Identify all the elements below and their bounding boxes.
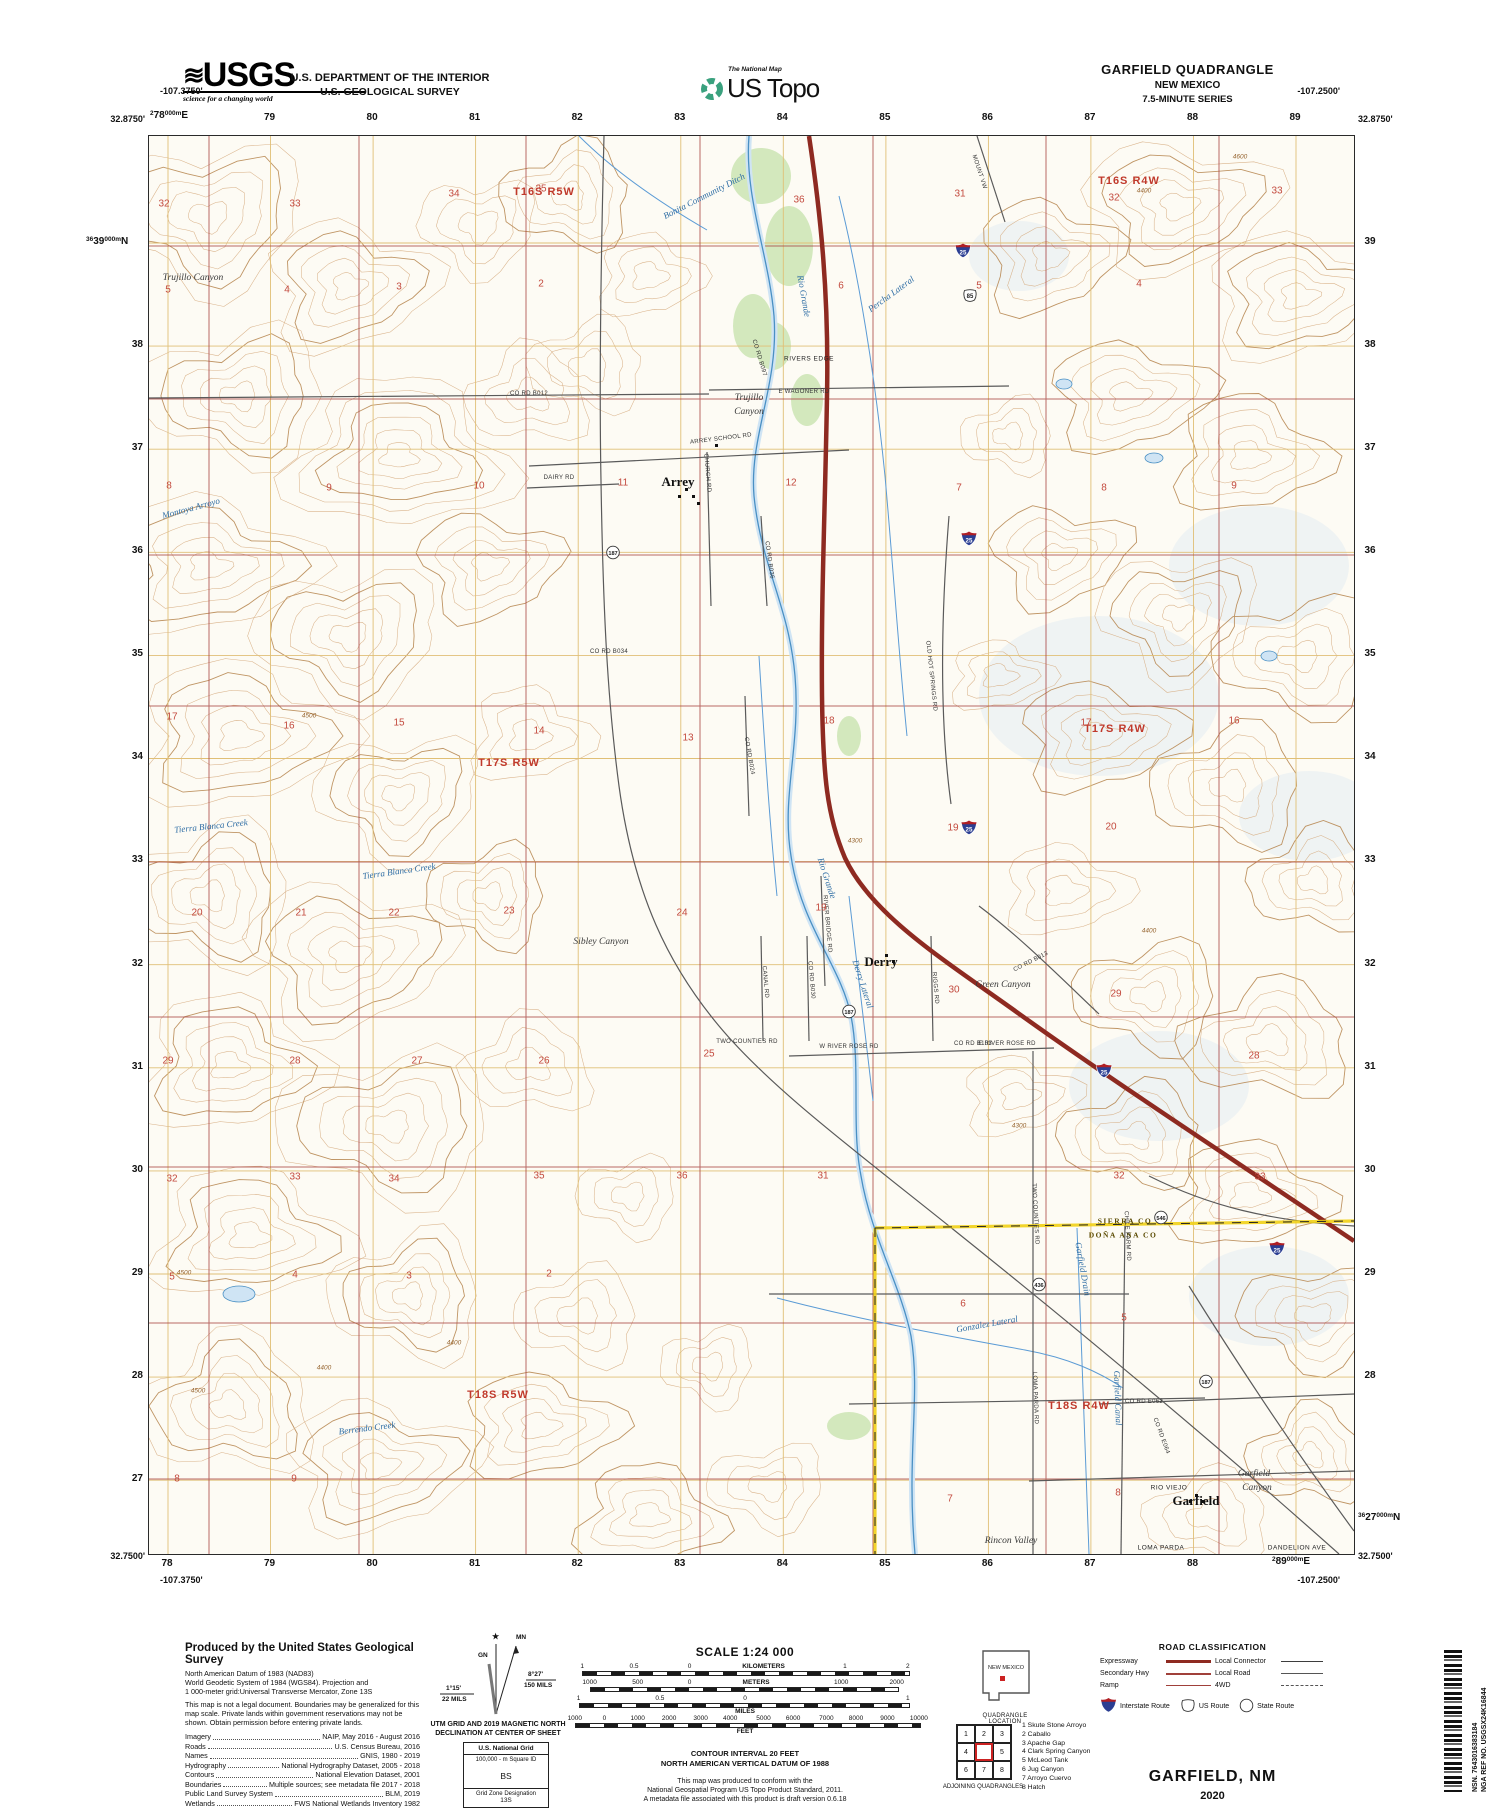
grid-tick-label: 36 bbox=[132, 545, 143, 556]
road-class-line-sample bbox=[1166, 1685, 1211, 1686]
water-label: Garfield Canal bbox=[1112, 1370, 1124, 1425]
section-number: 3 bbox=[396, 282, 402, 293]
landform-label: Canyon bbox=[1242, 1483, 1272, 1493]
ustopo-icon bbox=[700, 77, 724, 101]
quadrangle-location: NEW MEXICO QUADRANGLE LOCATION bbox=[968, 1645, 1042, 1725]
road-class-label: 4WD bbox=[1215, 1682, 1277, 1689]
ustopo-logo: The National Map US Topo bbox=[700, 66, 860, 104]
svg-text:25: 25 bbox=[966, 538, 973, 545]
usng-zone-label: Grid Zone Designation bbox=[464, 1788, 548, 1797]
usng-subtitle: 100,000 - m Square ID bbox=[464, 1755, 548, 1765]
page: ≋USGS science for a changing world U.S. … bbox=[0, 0, 1500, 1813]
road-label: ARREY SCHOOL RD bbox=[690, 432, 752, 446]
magnetic-north-label: MN bbox=[516, 1634, 526, 1641]
section-number: 2 bbox=[538, 279, 544, 290]
scale-bars: 10.50KILOMETERS1210005000METERS100020001… bbox=[560, 1663, 930, 1741]
credits-block: Produced by the United States Geological… bbox=[185, 1642, 420, 1808]
scale-bar-label: 1000 bbox=[834, 1679, 848, 1686]
adjoining-quad-name: 4 Clark Spring Canyon bbox=[1022, 1748, 1132, 1757]
svg-text:25: 25 bbox=[960, 250, 967, 257]
road-label: CO RD E062 bbox=[1125, 1399, 1163, 1405]
data-source-row: WetlandsFWS National Wetlands Inventory … bbox=[185, 1799, 420, 1809]
corner-lon-sw: -107.3750' bbox=[160, 1575, 203, 1585]
scale-bar-unit: FEET bbox=[737, 1728, 754, 1735]
grid-tick-label: 81 bbox=[469, 112, 480, 123]
grid-tick-label: 81 bbox=[469, 1558, 480, 1569]
scale-bar-label: 1000 bbox=[568, 1715, 582, 1722]
scale-bar-label: 6000 bbox=[786, 1715, 800, 1722]
adjoining-quad-name: 5 McLeod Tank bbox=[1022, 1757, 1132, 1766]
section-number: 19 bbox=[815, 903, 826, 914]
svg-text:436: 436 bbox=[1034, 1283, 1043, 1289]
road-label: CO RD B012 bbox=[510, 391, 548, 397]
section-number: 33 bbox=[1271, 186, 1282, 197]
town-label: Derry bbox=[864, 954, 897, 970]
adjoining-quad-cell: 5 bbox=[993, 1743, 1011, 1761]
road-label: CO RD B034 bbox=[590, 649, 628, 655]
town-label: Garfield bbox=[1173, 1493, 1220, 1509]
grid-tick-label: 33 bbox=[132, 854, 143, 865]
landform-label: Trujillo Canyon bbox=[163, 273, 223, 283]
county-label: DOÑA ANA CO bbox=[1089, 1231, 1158, 1240]
section-number: 4 bbox=[284, 285, 290, 296]
adjoining-quad-cell: 7 bbox=[975, 1761, 993, 1779]
sheet-year: 2020 bbox=[1100, 1790, 1325, 1802]
section-number: 15 bbox=[393, 718, 404, 729]
section-number: 5 bbox=[165, 285, 171, 296]
grid-tick-label: 34 bbox=[132, 751, 143, 762]
grid-tick-label: 31 bbox=[1364, 1061, 1375, 1072]
scale-bar-label: 1000 bbox=[582, 1679, 596, 1686]
road-class-line-sample bbox=[1166, 1673, 1211, 1675]
road-class-line-sample bbox=[1281, 1685, 1323, 1686]
corner-lon-nw: -107.3750' bbox=[160, 86, 203, 96]
usng-zone: 13S bbox=[464, 1797, 548, 1807]
state-route-key: State Route bbox=[1239, 1698, 1294, 1715]
svg-text:25: 25 bbox=[1274, 1248, 1281, 1255]
adjoining-quads-grid: 12345678 bbox=[956, 1724, 1012, 1780]
grid-tick-label: 35 bbox=[132, 648, 143, 659]
data-source-row: ContoursNational Elevation Dataset, 2001 bbox=[185, 1770, 420, 1780]
interstate-shield-icon: 25 bbox=[955, 243, 972, 264]
section-number: 7 bbox=[947, 1494, 953, 1505]
section-number: 5 bbox=[169, 1272, 175, 1283]
svg-text:187: 187 bbox=[1201, 1380, 1210, 1386]
section-number: 34 bbox=[388, 1174, 399, 1185]
us-route-shield-icon: 85 bbox=[962, 288, 978, 308]
landform-label: Trujillo bbox=[735, 393, 764, 403]
water-label: Bonita Community Ditch bbox=[662, 171, 747, 221]
road-label: W RIVER ROSE RD bbox=[819, 1044, 878, 1050]
road-label: E RIVER ROSE RD bbox=[978, 1041, 1036, 1047]
section-number: 8 bbox=[166, 481, 172, 492]
section-number: 30 bbox=[948, 985, 959, 996]
utm-northing-label: 3627000mN bbox=[1358, 1512, 1400, 1523]
grid-tick-label: 86 bbox=[982, 1558, 993, 1569]
water-label: Berrendo Creek bbox=[338, 1420, 396, 1437]
section-number: 9 bbox=[291, 1474, 297, 1485]
section-number: 10 bbox=[473, 481, 484, 492]
adjoining-quad-name: 2 Caballo bbox=[1022, 1731, 1132, 1740]
section-number: 31 bbox=[954, 189, 965, 200]
road-label: CO RD B097 bbox=[751, 339, 768, 377]
state-route-circle-icon bbox=[1239, 1698, 1254, 1715]
contour-elevation-label: 4600 bbox=[1233, 154, 1247, 161]
road-label: CO RD B030 bbox=[806, 961, 815, 999]
road-classification: ROAD CLASSIFICATION ExpresswayLocal Conn… bbox=[1100, 1642, 1325, 1715]
department-heading: U.S. DEPARTMENT OF THE INTERIOR U.S. GEO… bbox=[290, 72, 490, 98]
road-class-line-sample bbox=[1166, 1660, 1211, 1663]
corner-lon-se: -107.2500' bbox=[1297, 1575, 1340, 1585]
data-source-row: Public Land Survey SystemBLM, 2019 bbox=[185, 1789, 420, 1799]
grid-tick-label: 31 bbox=[132, 1061, 143, 1072]
scale-bar bbox=[582, 1671, 910, 1676]
adjoining-quad-cell: 3 bbox=[993, 1725, 1011, 1743]
grid-tick-label: 80 bbox=[367, 1558, 378, 1569]
scale-bar-label: 1000 bbox=[630, 1715, 644, 1722]
grid-tick-label: 29 bbox=[132, 1267, 143, 1278]
road-class-line-sample bbox=[1281, 1661, 1323, 1662]
section-number: 8 bbox=[174, 1474, 180, 1485]
road-label: LOMA PARDA RD bbox=[1031, 1372, 1039, 1425]
section-number: 27 bbox=[411, 1056, 422, 1067]
place-label: RIVERS EDGE bbox=[784, 356, 834, 363]
road-label: CO RD E064 bbox=[1152, 1417, 1171, 1455]
grid-tick-label: 84 bbox=[777, 1558, 788, 1569]
section-number: 32 bbox=[1113, 1171, 1124, 1182]
contour-elevation-label: 4400 bbox=[447, 1340, 461, 1347]
section-number: 36 bbox=[676, 1171, 687, 1182]
landform-label: Garfield bbox=[1238, 1469, 1270, 1479]
contour-elevation-label: 4400 bbox=[1137, 188, 1151, 195]
grid-tick-label: 36 bbox=[1364, 545, 1375, 556]
scale-bar-label: 500 bbox=[632, 1679, 643, 1686]
contour-elevation-label: 4400 bbox=[1142, 928, 1156, 935]
scale-bar-label: 1 bbox=[906, 1695, 910, 1702]
contour-elevation-label: 4400 bbox=[317, 1365, 331, 1372]
road-class-label: Secondary Hwy bbox=[1100, 1670, 1162, 1677]
road-label: CO RD B036 bbox=[763, 541, 774, 579]
grid-tick-label: 39 bbox=[1364, 236, 1375, 247]
interstate-shield-icon bbox=[1100, 1697, 1117, 1715]
interstate-shield-icon: 25 bbox=[1096, 1063, 1113, 1084]
svg-text:NEW MEXICO: NEW MEXICO bbox=[988, 1665, 1025, 1671]
section-number: 17 bbox=[1080, 718, 1091, 729]
scale-bar-label: 3000 bbox=[693, 1715, 707, 1722]
adjoining-quad-name: 3 Apache Gap bbox=[1022, 1740, 1132, 1749]
section-number: 9 bbox=[326, 483, 332, 494]
section-number: 16 bbox=[283, 721, 294, 732]
utm-easting-label: 278000mE bbox=[150, 110, 188, 121]
scale-bar-label: 8000 bbox=[849, 1715, 863, 1722]
grid-tick-label: 85 bbox=[879, 112, 890, 123]
contour-elevation-label: 4500 bbox=[191, 1388, 205, 1395]
road-label: CANAL RD bbox=[761, 966, 770, 999]
section-number: 19 bbox=[947, 823, 958, 834]
water-label: Percha Lateral bbox=[866, 274, 916, 314]
section-number: 20 bbox=[191, 908, 202, 919]
adjoining-quad-cell: 6 bbox=[957, 1761, 975, 1779]
dept-line1: U.S. DEPARTMENT OF THE INTERIOR bbox=[290, 72, 490, 84]
grid-tick-label: 83 bbox=[674, 1558, 685, 1569]
grid-tick-label: 34 bbox=[1364, 751, 1375, 762]
section-number: 9 bbox=[1231, 481, 1237, 492]
quad-location-dot bbox=[1000, 1676, 1005, 1681]
section-number: 16 bbox=[1228, 716, 1239, 727]
scale-bar-label: 0 bbox=[688, 1663, 692, 1670]
grid-tick-label: 85 bbox=[879, 1558, 890, 1569]
data-source-row: NamesGNIS, 1980 - 2019 bbox=[185, 1751, 420, 1761]
grid-tick-label: 28 bbox=[1364, 1370, 1375, 1381]
svg-text:25: 25 bbox=[1101, 1070, 1108, 1077]
svg-text:85: 85 bbox=[967, 294, 974, 300]
datum-line1: North American Datum of 1983 (NAD83) bbox=[185, 1669, 420, 1678]
section-number: 31 bbox=[817, 1171, 828, 1182]
grid-tick-label: 86 bbox=[982, 112, 993, 123]
township-label: T18S R5W bbox=[467, 1389, 529, 1401]
contour-elevation-label: 4500 bbox=[302, 713, 316, 720]
gn-mils: 22 MILS bbox=[442, 1696, 467, 1703]
scale-bar-label: 9000 bbox=[880, 1715, 894, 1722]
grid-tick-label: 30 bbox=[132, 1164, 143, 1175]
road-class-label: Local Road bbox=[1215, 1670, 1277, 1677]
interstate-shield-icon: 25 bbox=[1269, 1241, 1286, 1262]
section-number: 21 bbox=[295, 908, 306, 919]
quad-state: NEW MEXICO bbox=[1080, 80, 1295, 91]
contour-elevation-label: 4300 bbox=[1012, 1123, 1026, 1130]
section-number: 7 bbox=[956, 483, 962, 494]
section-number: 23 bbox=[503, 906, 514, 917]
section-number: 25 bbox=[703, 1049, 714, 1060]
ustopo-label: US Topo bbox=[727, 73, 819, 104]
adjoining-quads-caption: ADJOINING QUADRANGLES bbox=[942, 1784, 1024, 1790]
scale-bar-label: 1 bbox=[577, 1695, 581, 1702]
grid-tick-label: 32 bbox=[132, 958, 143, 969]
sheet-name: GARFIELD, NM bbox=[1100, 1768, 1325, 1786]
interstate-shield-icon: 25 bbox=[961, 531, 978, 552]
mn-mils: 150 MILS bbox=[524, 1682, 552, 1689]
data-source-row: RoadsU.S. Census Bureau, 2016 bbox=[185, 1742, 420, 1752]
adjoining-quad-cell: 1 bbox=[957, 1725, 975, 1743]
datum-line2: World Geodetic System of 1984 (WGS84). P… bbox=[185, 1678, 420, 1687]
svg-text:187: 187 bbox=[844, 1010, 853, 1016]
map-labels-layer: T16S R5WT16S R4WT17S R5WT17S R4WT18S R5W… bbox=[149, 136, 1354, 1554]
adjoining-quad-cell: 4 bbox=[957, 1743, 975, 1761]
product-standard-note: This map was produced to conform with th… bbox=[560, 1777, 930, 1804]
credits-title: Produced by the United States Geological… bbox=[185, 1642, 420, 1666]
scale-bar-label: 7000 bbox=[819, 1715, 833, 1722]
section-number: 33 bbox=[289, 199, 300, 210]
interstate-route-key: Interstate Route bbox=[1100, 1697, 1170, 1715]
section-number: 11 bbox=[618, 478, 628, 489]
us-route-shield-icon bbox=[1180, 1698, 1196, 1715]
contour-elevation-label: 4300 bbox=[848, 838, 862, 845]
section-number: 26 bbox=[538, 1056, 549, 1067]
svg-text:25: 25 bbox=[966, 827, 973, 834]
scale-bar-label: 10000 bbox=[910, 1715, 928, 1722]
water-label: Rio Grande bbox=[795, 274, 812, 317]
grid-tick-label: 87 bbox=[1084, 1558, 1095, 1569]
grid-tick-label: 37 bbox=[1364, 442, 1375, 453]
corner-lat-sw: 32.7500' bbox=[110, 1551, 145, 1561]
corner-lat-ne: 32.8750' bbox=[1358, 114, 1393, 124]
water-label: Garfield Drain bbox=[1073, 1241, 1092, 1296]
water-label: Gonzalez Lateral bbox=[955, 1314, 1018, 1335]
landform-label: Sibley Canyon bbox=[573, 937, 628, 947]
road-label: CO RD B024 bbox=[743, 737, 756, 775]
corner-lon-ne: -107.2500' bbox=[1297, 86, 1340, 96]
section-number: 17 bbox=[166, 712, 177, 723]
road-label: MOUNT VW bbox=[971, 154, 988, 190]
grid-tick-label: 88 bbox=[1187, 1558, 1198, 1569]
data-sources-list: ImageryNAIP, May 2016 - August 2016Roads… bbox=[185, 1732, 420, 1808]
scale-bar-label: 2000 bbox=[662, 1715, 676, 1722]
state-route-circle-icon: 187 bbox=[842, 1004, 857, 1024]
scale-bar-label: 0 bbox=[688, 1679, 692, 1686]
township-label: T17S R5W bbox=[478, 757, 540, 769]
road-label: TWO COUNTIES RD bbox=[716, 1039, 778, 1045]
grid-north-label: GN bbox=[478, 1652, 488, 1659]
grid-tick-label: 37 bbox=[132, 442, 143, 453]
adjoining-quad-center bbox=[975, 1743, 993, 1761]
township-label: T18S R4W bbox=[1048, 1400, 1110, 1412]
legal-note: This map is not a legal document. Bounda… bbox=[185, 1700, 420, 1727]
section-number: 35 bbox=[535, 184, 546, 195]
national-map-label: The National Map bbox=[728, 66, 860, 73]
quad-name: GARFIELD QUADRANGLE bbox=[1080, 62, 1295, 77]
utm-northing-label: 3639000mN bbox=[86, 236, 128, 247]
section-number: 4 bbox=[1136, 279, 1142, 290]
state-route-circle-icon: 546 bbox=[1154, 1210, 1169, 1230]
scale-bar-label: 4000 bbox=[723, 1715, 737, 1722]
grid-tick-label: 29 bbox=[1364, 1267, 1375, 1278]
scale-bar-label: 1 bbox=[580, 1663, 584, 1670]
section-number: 8 bbox=[1115, 1488, 1121, 1499]
section-number: 13 bbox=[682, 733, 693, 744]
section-number: 29 bbox=[1110, 989, 1121, 1000]
road-label: CO RD B103 bbox=[954, 1041, 992, 1047]
quad-series: 7.5-MINUTE SERIES bbox=[1080, 94, 1295, 105]
water-label: Montoya Arroyo bbox=[161, 496, 221, 521]
section-number: 3 bbox=[406, 1271, 412, 1282]
grid-tick-label: 89 bbox=[1289, 112, 1300, 123]
road-label: RIVER BRIDGE RD bbox=[821, 895, 832, 953]
utm-easting-label: 289000mE bbox=[1272, 1556, 1310, 1567]
grid-tick-label: 33 bbox=[1364, 854, 1375, 865]
scale-bar-label: 2 bbox=[906, 1663, 910, 1670]
scale-bar-label: KILOMETERS bbox=[742, 1663, 785, 1670]
true-north-star: ★ bbox=[492, 1632, 499, 1641]
road-label: CO RD B013 bbox=[1013, 951, 1050, 974]
mn-degrees: 8°27' bbox=[528, 1671, 543, 1678]
grid-tick-label: 32 bbox=[1364, 958, 1375, 969]
county-label: SIERRA CO bbox=[1098, 1217, 1153, 1226]
adjoining-quad-cell: 8 bbox=[993, 1761, 1011, 1779]
scale-title: SCALE 1:24 000 bbox=[560, 1645, 930, 1659]
township-label: T17S R4W bbox=[1084, 723, 1146, 735]
us-route-key: US Route bbox=[1180, 1698, 1229, 1715]
water-label: Tierra Blanca Creek bbox=[362, 861, 436, 881]
nga-ref-number: NGA REF NO. USGSX24K16844 bbox=[1481, 1688, 1488, 1792]
scale-bar-label: 0.5 bbox=[629, 1663, 638, 1670]
road-label: DAIRY RD bbox=[544, 475, 575, 481]
state-route-circle-icon: 436 bbox=[1032, 1277, 1047, 1297]
gn-degrees: 1°15' bbox=[446, 1685, 461, 1692]
grid-tick-label: 78 bbox=[161, 1558, 172, 1569]
contour-elevation-label: 4500 bbox=[177, 1270, 191, 1277]
contour-interval-note: CONTOUR INTERVAL 20 FEET NORTH AMERICAN … bbox=[560, 1749, 930, 1769]
section-number: 14 bbox=[533, 726, 544, 737]
svg-text:546: 546 bbox=[1156, 1216, 1165, 1222]
grid-tick-label: 35 bbox=[1364, 648, 1375, 659]
grid-tick-label: 82 bbox=[572, 1558, 583, 1569]
grid-tick-label: 28 bbox=[132, 1370, 143, 1381]
adjoining-quad-name: 1 Skute Stone Arroyo bbox=[1022, 1722, 1132, 1731]
data-source-row: BoundariesMultiple sources; see metadata… bbox=[185, 1780, 420, 1790]
road-class-line-sample bbox=[1281, 1673, 1323, 1674]
grid-tick-label: 30 bbox=[1364, 1164, 1375, 1175]
declination-lines bbox=[430, 1634, 566, 1718]
grid-tick-label: 79 bbox=[264, 112, 275, 123]
road-label: CHURCH RD bbox=[702, 453, 711, 492]
section-number: 29 bbox=[162, 1056, 173, 1067]
road-label: CHILE FARM RD bbox=[1123, 1211, 1132, 1261]
section-number: 12 bbox=[785, 478, 796, 489]
grid-tick-label: 87 bbox=[1084, 112, 1095, 123]
section-number: 28 bbox=[1248, 1051, 1259, 1062]
section-number: 24 bbox=[676, 908, 687, 919]
landform-label: Canyon bbox=[734, 407, 764, 417]
grid-tick-label: 38 bbox=[1364, 339, 1375, 350]
corner-lat-nw: 32.8750' bbox=[110, 114, 145, 124]
scale-bar-label: METERS bbox=[743, 1679, 770, 1686]
section-number: 32 bbox=[1108, 193, 1119, 204]
section-number: 34 bbox=[448, 189, 459, 200]
barcode bbox=[1444, 1650, 1462, 1792]
declination-diagram: ★ MN GN 8°27' 150 MILS 1°15' 22 MILS bbox=[430, 1634, 566, 1718]
grid-tick-label: 79 bbox=[264, 1558, 275, 1569]
water-label: Tierra Blanca Creek bbox=[174, 817, 248, 835]
section-number: 4 bbox=[292, 1270, 298, 1281]
scale-block: SCALE 1:24 000 10.50KILOMETERS1210005000… bbox=[560, 1645, 930, 1804]
town-label: Arrey bbox=[662, 474, 695, 490]
svg-text:187: 187 bbox=[608, 551, 617, 557]
section-number: 36 bbox=[793, 195, 804, 206]
grid-tick-label: 27 bbox=[132, 1473, 143, 1484]
section-number: 18 bbox=[823, 716, 834, 727]
grid-tick-label: 80 bbox=[367, 112, 378, 123]
place-label: DANDELION AVE bbox=[1268, 1545, 1326, 1552]
data-source-row: ImageryNAIP, May 2016 - August 2016 bbox=[185, 1732, 420, 1742]
scale-bar-label: 1 bbox=[843, 1663, 847, 1670]
state-route-circle-icon: 187 bbox=[606, 545, 621, 565]
section-number: 6 bbox=[838, 281, 844, 292]
adjoining-quad-cell: 2 bbox=[975, 1725, 993, 1743]
road-label: E WAGONER RD bbox=[778, 389, 829, 395]
section-number: 32 bbox=[166, 1174, 177, 1185]
nsn-number: NSN. 7643016383184 bbox=[1472, 1723, 1479, 1792]
scale-bar-label: 0 bbox=[603, 1715, 607, 1722]
place-label: LOMA PARDA bbox=[1138, 1545, 1185, 1552]
section-number: 6 bbox=[960, 1299, 966, 1310]
section-number: 33 bbox=[289, 1172, 300, 1183]
road-label: TWO COUNTIES RD bbox=[1030, 1183, 1039, 1245]
section-number: 28 bbox=[289, 1056, 300, 1067]
road-class-label: Ramp bbox=[1100, 1682, 1162, 1689]
water-label: Rio Grande bbox=[816, 856, 839, 899]
section-number: 2 bbox=[546, 1269, 552, 1280]
grid-tick-label: 88 bbox=[1187, 112, 1198, 123]
